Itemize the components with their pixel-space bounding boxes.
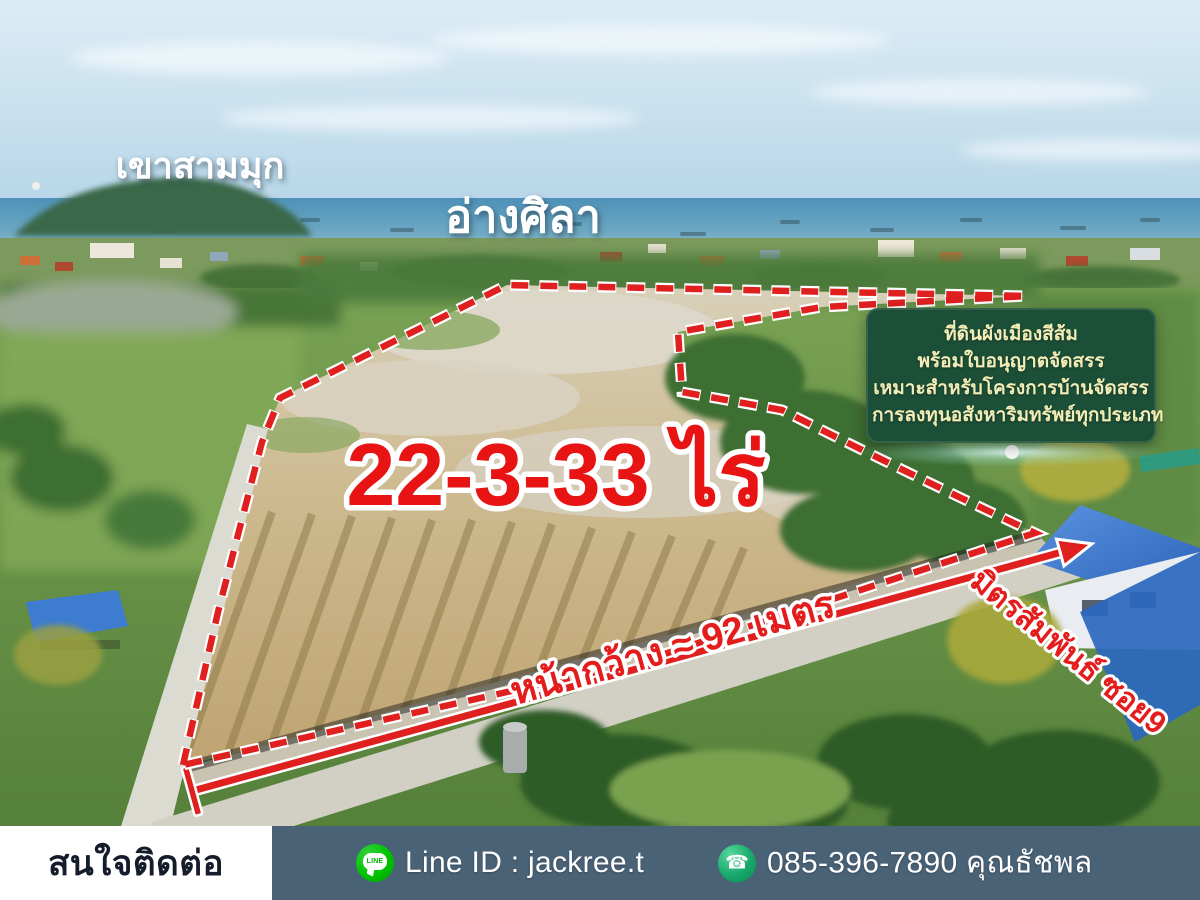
- pagoda-dot: [32, 182, 40, 190]
- info-line: เหมาะสำหรับโครงการบ้านจัดสรร: [872, 375, 1150, 402]
- hill-label: เขาสามมุก: [116, 145, 285, 189]
- bay-label: อ่างศิลา: [445, 191, 601, 242]
- contact-details-panel: LINE Line ID : jackree.t ☎ 085-396-7890 …: [272, 826, 1200, 900]
- line-id-text: Line ID : jackree.t: [405, 846, 644, 880]
- line-messenger-icon: LINE: [356, 844, 394, 882]
- contact-bar: สนใจติดต่อ LINE Line ID : jackree.t ☎ 08…: [0, 826, 1200, 900]
- phone-icon: ☎: [718, 844, 756, 882]
- info-line: การลงทุนอสังหาริมทรัพย์ทุกประเภท: [872, 402, 1150, 429]
- info-line: ที่ดินผังเมืองสีส้ม: [872, 321, 1150, 348]
- line-contact: LINE Line ID : jackree.t: [356, 844, 644, 882]
- phone-glyph: ☎: [725, 854, 749, 873]
- lens-flare-core: [1005, 445, 1019, 459]
- land-sale-ad: เขาสามมุก อ่างศิลา 22-3-33 ไร่ หน้ากว้าง…: [0, 0, 1200, 900]
- phone-contact: ☎ 085-396-7890 คุณธัชพล: [718, 840, 1093, 887]
- line-icon-text: LINE: [367, 858, 384, 865]
- water-tank: [503, 722, 527, 773]
- property-info-box: ที่ดินผังเมืองสีส้ม พร้อมใบอนุญาตจัดสรร …: [866, 308, 1156, 443]
- contact-heading: สนใจติดต่อ: [48, 836, 224, 891]
- phone-number-text: 085-396-7890 คุณธัชพล: [767, 840, 1093, 887]
- contact-heading-panel: สนใจติดต่อ: [0, 826, 272, 900]
- area-size-label: 22-3-33 ไร่: [346, 425, 765, 524]
- info-line: พร้อมใบอนุญาตจัดสรร: [872, 348, 1150, 375]
- aerial-photo: เขาสามมุก อ่างศิลา 22-3-33 ไร่ หน้ากว้าง…: [0, 0, 1200, 900]
